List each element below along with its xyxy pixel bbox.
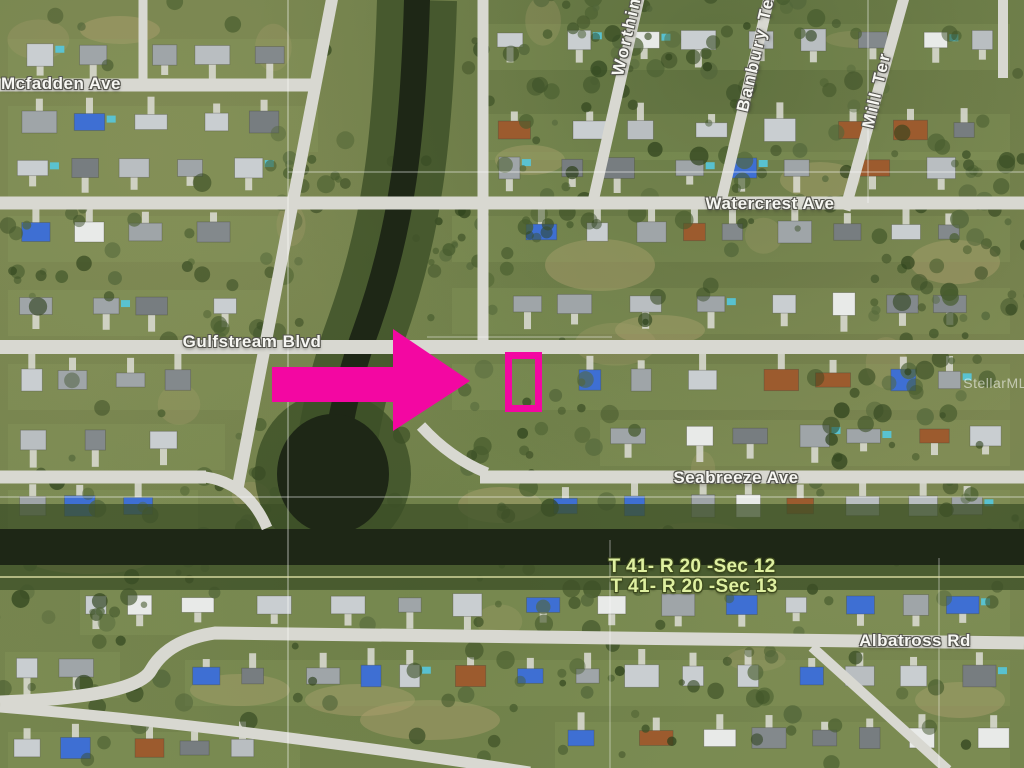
- tree: [409, 728, 426, 745]
- tree: [976, 441, 984, 449]
- tree: [631, 710, 639, 718]
- tree: [568, 597, 580, 609]
- house: [573, 121, 606, 139]
- tree: [558, 407, 566, 415]
- pool: [727, 298, 736, 305]
- tree: [193, 173, 212, 192]
- tree: [646, 6, 652, 12]
- tree: [581, 594, 594, 607]
- tree: [922, 720, 937, 735]
- tree: [820, 78, 829, 87]
- tree: [64, 373, 80, 389]
- tree: [566, 166, 579, 179]
- tree: [180, 486, 190, 496]
- house: [833, 293, 855, 316]
- tree: [893, 293, 911, 311]
- tree: [956, 390, 967, 401]
- tree: [929, 258, 944, 273]
- tree: [951, 160, 959, 168]
- tree: [707, 683, 723, 699]
- tree: [619, 751, 626, 758]
- tree: [581, 686, 594, 699]
- tree: [532, 77, 548, 93]
- tree: [999, 152, 1015, 168]
- house: [153, 45, 177, 65]
- tree: [260, 252, 272, 264]
- tree: [213, 320, 229, 336]
- tree: [667, 736, 676, 745]
- tree: [458, 234, 466, 242]
- house: [21, 369, 42, 391]
- tree: [519, 445, 529, 455]
- tree: [615, 666, 625, 676]
- tree: [517, 428, 528, 439]
- tree: [519, 44, 530, 55]
- tree: [559, 680, 566, 687]
- tree: [96, 607, 105, 616]
- tree: [966, 228, 984, 246]
- house: [903, 595, 928, 616]
- house: [688, 370, 716, 389]
- tree: [793, 143, 808, 158]
- house: [193, 667, 220, 685]
- tree: [641, 725, 649, 733]
- tree: [784, 705, 802, 723]
- tree: [724, 593, 734, 603]
- tree: [428, 264, 441, 277]
- tree: [828, 718, 842, 732]
- tree: [990, 246, 1001, 257]
- house: [17, 160, 48, 175]
- tree: [1008, 290, 1017, 299]
- tree: [29, 297, 47, 315]
- tree: [850, 388, 860, 398]
- pool: [121, 300, 130, 307]
- tree: [81, 753, 94, 766]
- tree: [961, 739, 971, 749]
- house: [598, 596, 626, 614]
- house: [513, 296, 541, 312]
- tree: [918, 303, 926, 311]
- tree: [1012, 68, 1023, 79]
- tree: [948, 357, 955, 364]
- pool: [107, 116, 116, 123]
- tree: [585, 438, 603, 456]
- tree: [271, 126, 286, 141]
- tree: [873, 404, 891, 422]
- tree: [42, 610, 56, 624]
- driveway: [811, 445, 818, 463]
- driveway: [696, 444, 703, 462]
- tree: [757, 168, 767, 178]
- house: [235, 158, 263, 178]
- driveway: [920, 482, 927, 498]
- house: [978, 728, 1009, 748]
- house: [631, 369, 651, 391]
- tree: [322, 695, 338, 711]
- driveway: [903, 209, 910, 227]
- tree: [871, 306, 880, 315]
- driveway: [932, 46, 939, 63]
- tree: [127, 213, 141, 227]
- tree: [976, 114, 989, 127]
- tree: [458, 686, 475, 703]
- map-canvas: Mcfadden AveWorthinBanbury TerMill TerWa…: [0, 0, 1024, 768]
- house: [972, 30, 993, 49]
- tree: [562, 1, 570, 9]
- tree: [292, 643, 299, 650]
- driveway: [160, 447, 167, 465]
- house: [497, 33, 523, 47]
- tree: [928, 679, 944, 695]
- pool: [706, 162, 715, 169]
- tree: [496, 651, 514, 669]
- tree: [590, 60, 607, 77]
- house: [733, 428, 768, 444]
- tree: [108, 271, 122, 285]
- tree: [723, 657, 732, 666]
- tree: [844, 71, 863, 90]
- house: [195, 45, 230, 64]
- driveway: [127, 358, 134, 375]
- tree: [307, 155, 316, 164]
- driveway: [793, 174, 800, 192]
- driveway: [148, 97, 155, 117]
- tree: [857, 416, 873, 432]
- tree: [737, 218, 748, 229]
- tree: [336, 131, 354, 149]
- house: [135, 739, 164, 758]
- driveway: [638, 649, 645, 667]
- tree: [807, 369, 824, 386]
- tree: [226, 279, 238, 291]
- driveway: [614, 176, 621, 193]
- house: [455, 665, 485, 686]
- tree: [786, 725, 796, 735]
- tree: [535, 422, 548, 435]
- tree: [906, 378, 923, 395]
- tree: [188, 258, 195, 265]
- tree: [584, 0, 602, 7]
- tree: [265, 160, 277, 172]
- tree: [850, 28, 862, 40]
- tree: [8, 267, 17, 276]
- tree: [14, 276, 22, 284]
- tree: [915, 361, 934, 380]
- driveway: [320, 653, 327, 670]
- driveway: [368, 648, 375, 667]
- tree: [462, 61, 475, 74]
- tree: [604, 25, 621, 42]
- tree: [36, 270, 47, 281]
- tree: [703, 0, 718, 4]
- tree: [194, 266, 210, 282]
- tree: [535, 615, 553, 633]
- house: [773, 295, 796, 313]
- house: [858, 32, 887, 48]
- tree: [705, 119, 712, 126]
- house: [704, 729, 736, 746]
- tree: [97, 736, 111, 750]
- driveway: [747, 442, 754, 459]
- tree: [687, 680, 700, 693]
- driveway: [778, 352, 785, 372]
- pool: [759, 160, 768, 167]
- house: [813, 730, 837, 746]
- tree: [427, 314, 434, 321]
- tree: [904, 368, 911, 375]
- house: [17, 658, 38, 678]
- driveway: [174, 352, 181, 371]
- house: [892, 225, 921, 240]
- tree: [295, 318, 304, 327]
- tree: [1020, 239, 1024, 250]
- tree: [1005, 304, 1017, 316]
- tree: [92, 593, 108, 609]
- house: [180, 741, 209, 755]
- tree: [495, 601, 502, 608]
- tree: [650, 289, 666, 305]
- tree: [942, 289, 959, 306]
- tree: [734, 173, 751, 190]
- house: [625, 665, 659, 688]
- tree: [166, 0, 183, 10]
- house: [27, 44, 53, 66]
- tree: [825, 433, 838, 446]
- house: [786, 597, 807, 612]
- tree: [834, 402, 850, 418]
- canal-water-basin: [277, 414, 389, 534]
- tree: [558, 745, 568, 755]
- house: [80, 45, 107, 65]
- tree: [743, 22, 751, 30]
- tree: [891, 150, 898, 157]
- house: [135, 114, 167, 129]
- house: [197, 222, 230, 242]
- tree: [500, 262, 514, 276]
- house: [927, 157, 956, 178]
- house: [847, 596, 875, 614]
- tree: [929, 329, 939, 339]
- house: [557, 294, 591, 313]
- tree: [503, 46, 519, 62]
- tree: [470, 402, 479, 411]
- tree: [628, 100, 638, 110]
- tree: [894, 125, 910, 141]
- tree: [816, 489, 824, 497]
- tree: [549, 389, 562, 402]
- pool: [55, 46, 64, 53]
- driveway: [103, 312, 110, 330]
- house: [257, 596, 291, 614]
- pool: [422, 667, 431, 674]
- tree: [407, 663, 423, 679]
- tree: [532, 136, 540, 144]
- tree: [515, 676, 526, 687]
- tree: [901, 256, 915, 270]
- tree: [628, 424, 641, 437]
- driveway: [729, 209, 736, 226]
- tree: [591, 33, 600, 42]
- house: [662, 594, 695, 616]
- tree: [642, 319, 648, 325]
- tree: [577, 404, 586, 413]
- pool: [522, 159, 531, 166]
- tree: [487, 305, 497, 315]
- tree: [294, 257, 303, 266]
- pool: [50, 162, 59, 169]
- tree: [578, 378, 586, 386]
- tree: [747, 664, 763, 680]
- tree: [532, 233, 542, 243]
- tree: [9, 226, 23, 240]
- tree: [655, 620, 665, 630]
- tree: [700, 48, 711, 59]
- tree: [963, 245, 972, 254]
- house: [568, 730, 594, 746]
- tree: [566, 221, 573, 228]
- tree: [475, 360, 494, 379]
- driveway: [961, 108, 968, 124]
- house: [242, 668, 264, 684]
- pool: [882, 431, 891, 438]
- driveway: [524, 310, 531, 329]
- house: [22, 111, 57, 133]
- driveway: [699, 354, 706, 373]
- tree: [939, 412, 945, 418]
- tree: [870, 298, 878, 306]
- tree: [882, 254, 892, 264]
- satellite-map: [0, 0, 1024, 768]
- tree: [882, 376, 897, 391]
- tree: [501, 247, 513, 259]
- tree: [770, 145, 781, 156]
- tree: [644, 33, 651, 40]
- tree: [433, 248, 440, 255]
- tree: [675, 211, 694, 230]
- tree: [765, 650, 779, 664]
- house: [784, 160, 809, 177]
- tree: [474, 437, 492, 455]
- tree: [22, 221, 31, 230]
- driveway: [148, 313, 155, 332]
- house: [182, 598, 214, 613]
- house: [331, 596, 365, 614]
- tree: [12, 590, 30, 608]
- tree: [949, 233, 959, 243]
- tree: [950, 210, 969, 229]
- tree: [724, 242, 739, 257]
- tree: [661, 52, 678, 69]
- tree: [822, 175, 829, 182]
- tree: [872, 228, 888, 244]
- house: [136, 297, 168, 315]
- tree: [543, 29, 553, 39]
- tree: [583, 76, 600, 93]
- house: [764, 369, 799, 390]
- tree: [941, 26, 957, 42]
- tree: [593, 4, 600, 11]
- house: [453, 594, 482, 617]
- tree: [89, 609, 95, 615]
- house: [834, 224, 861, 241]
- tree: [465, 641, 484, 660]
- tree: [911, 274, 928, 291]
- house: [14, 739, 40, 757]
- house: [165, 370, 191, 391]
- tree: [794, 27, 806, 39]
- tree: [317, 175, 335, 193]
- tree: [871, 275, 880, 284]
- tree: [751, 733, 763, 745]
- house: [778, 221, 812, 243]
- tree: [578, 30, 587, 39]
- tree: [519, 165, 526, 172]
- tree: [82, 488, 94, 500]
- tree: [664, 31, 681, 48]
- tree: [968, 165, 978, 175]
- tree: [807, 9, 825, 27]
- driveway: [249, 653, 256, 670]
- tree: [308, 677, 317, 686]
- house: [687, 426, 714, 445]
- house: [954, 123, 974, 138]
- tree: [706, 35, 720, 49]
- house: [399, 598, 422, 612]
- tree: [561, 182, 570, 191]
- pool: [998, 667, 1007, 674]
- tree: [721, 25, 733, 37]
- driveway: [28, 353, 35, 371]
- house: [920, 429, 950, 443]
- tree: [473, 617, 483, 627]
- tree: [47, 8, 63, 24]
- tree: [696, 288, 710, 302]
- tree: [203, 310, 211, 318]
- tree: [1005, 218, 1012, 225]
- house: [637, 222, 666, 242]
- tree: [795, 225, 801, 231]
- tree: [581, 102, 591, 112]
- driveway: [708, 310, 715, 329]
- house: [800, 667, 823, 685]
- driveway: [30, 448, 37, 468]
- driveway: [578, 712, 585, 732]
- tree: [158, 409, 166, 417]
- house: [859, 727, 880, 748]
- tree: [975, 266, 988, 279]
- driveway: [840, 313, 847, 331]
- tree: [519, 114, 534, 129]
- tree: [574, 427, 590, 443]
- house: [116, 373, 145, 387]
- tree: [94, 400, 110, 416]
- house: [361, 665, 381, 687]
- tree: [601, 405, 619, 423]
- tree: [985, 595, 998, 608]
- tree: [225, 16, 242, 33]
- tree: [497, 157, 513, 173]
- tree: [552, 120, 558, 126]
- tree: [109, 607, 120, 618]
- house: [255, 47, 284, 64]
- tree: [744, 647, 754, 657]
- tree: [943, 312, 958, 327]
- tree: [805, 30, 816, 41]
- tree: [847, 99, 860, 112]
- tree: [608, 675, 615, 682]
- tree: [935, 139, 950, 154]
